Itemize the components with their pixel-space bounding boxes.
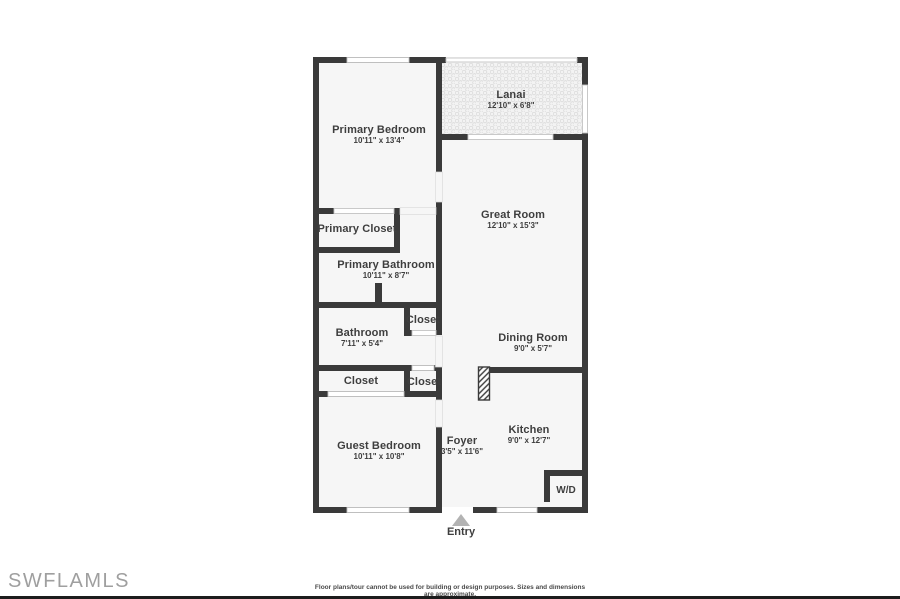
room-dims: 9'0" x 12'7" <box>508 436 551 446</box>
entry-label: Entry <box>447 526 475 538</box>
room-name: Guest Bedroom <box>337 440 421 452</box>
room-name: Closet <box>407 376 441 388</box>
room-label-foyer-closet: Closet <box>407 376 441 388</box>
room-name: Primary Closet <box>317 223 396 235</box>
room-label-primary-bathroom: Primary Bathroom 10'11" x 8'7" <box>337 259 435 281</box>
room-label-guest-bedroom: Guest Bedroom 10'11" x 10'8" <box>337 440 421 462</box>
room-name: Lanai <box>488 89 535 101</box>
room-dims: 9'0" x 5'7" <box>498 344 568 354</box>
room-name: Primary Bedroom <box>332 124 426 136</box>
room-label-foyer: Foyer 3'5" x 11'6" <box>441 435 483 457</box>
room-label-dining-room: Dining Room 9'0" x 5'7" <box>498 332 568 354</box>
room-name: W/D <box>556 485 575 496</box>
room-dims: 10'11" x 13'4" <box>332 136 426 146</box>
room-label-guest-closet: Closet <box>344 375 378 387</box>
kitchen-hatched-fixture <box>479 367 490 400</box>
room-dims: 7'11" x 5'4" <box>336 339 389 349</box>
entry-arrow-icon <box>452 514 470 526</box>
room-name: Closet <box>406 314 440 326</box>
room-name: Foyer <box>441 435 483 447</box>
room-name: Great Room <box>481 209 545 221</box>
room-dims: 10'11" x 8'7" <box>337 271 435 281</box>
room-label-hall-closet: Closet <box>406 314 440 326</box>
room-label-kitchen: Kitchen 9'0" x 12'7" <box>508 424 551 446</box>
room-dims: 12'10" x 6'8" <box>488 101 535 111</box>
room-name: Primary Bathroom <box>337 259 435 271</box>
room-name: Kitchen <box>508 424 551 436</box>
room-dims: 3'5" x 11'6" <box>441 447 483 457</box>
room-dims: 12'10" x 15'3" <box>481 221 545 231</box>
floor-plan-drawing <box>0 0 900 599</box>
room-name: Dining Room <box>498 332 568 344</box>
entry-door-gap <box>442 507 473 513</box>
room-label-primary-closet: Primary Closet <box>317 223 396 235</box>
mls-watermark: SWFLAMLS <box>8 570 130 593</box>
room-name: Closet <box>344 375 378 387</box>
room-label-bathroom: Bathroom 7'11" x 5'4" <box>336 327 389 349</box>
room-label-lanai: Lanai 12'10" x 6'8" <box>488 89 535 111</box>
room-label-primary-bedroom: Primary Bedroom 10'11" x 13'4" <box>332 124 426 146</box>
floor-plan-page: Primary Bedroom 10'11" x 13'4" Lanai 12'… <box>0 0 900 599</box>
room-dims: 10'11" x 10'8" <box>337 452 421 462</box>
room-label-great-room: Great Room 12'10" x 15'3" <box>481 209 545 231</box>
room-label-wd: W/D <box>556 485 575 496</box>
room-name: Bathroom <box>336 327 389 339</box>
